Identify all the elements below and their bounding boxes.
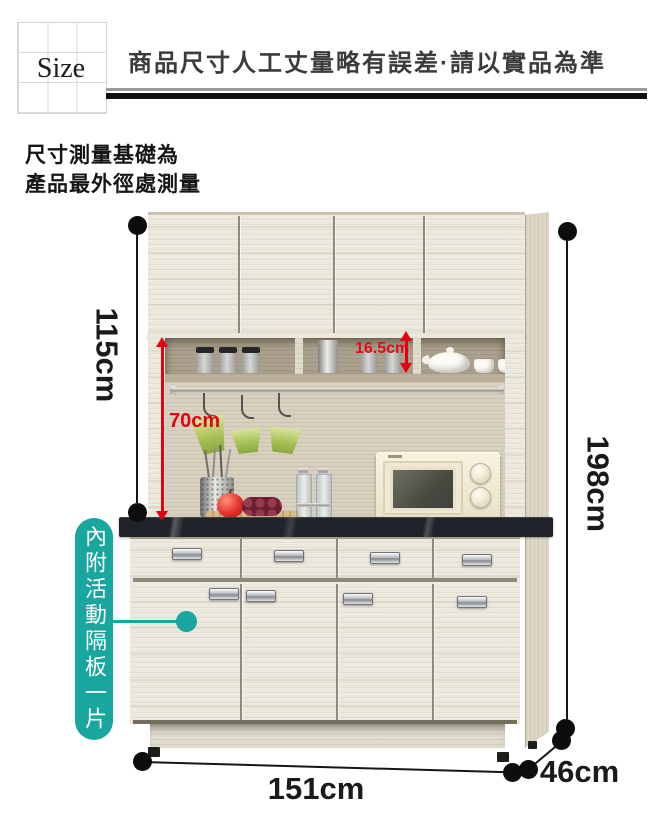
door-handle-4 [457, 596, 487, 608]
hutch-door-gap-3 [423, 216, 425, 333]
microwave-brand-mark [388, 455, 402, 458]
door-handle-3 [343, 593, 373, 605]
width-label: 151cm [256, 771, 376, 807]
header-rule-black [106, 93, 647, 99]
upper-height-label: 115cm [92, 308, 123, 398]
total-height-line [566, 234, 568, 726]
header-rule-gray [106, 88, 647, 91]
foot-side [528, 741, 537, 749]
upper-height-line [136, 226, 138, 512]
marble-countertop [119, 517, 553, 537]
note-line-2: 產品最外徑處測量 [25, 170, 201, 199]
door-handle-1 [209, 588, 239, 600]
niche-divider-2 [413, 338, 421, 374]
right-stile [505, 338, 525, 518]
total-height-dot-top [558, 222, 577, 241]
door-gap-2 [336, 584, 338, 722]
door-gap-3 [432, 584, 434, 722]
rail-hook-3 [278, 393, 291, 417]
drawer-gap-3 [432, 539, 434, 578]
callout-pill: 內附活動隔板一片 [75, 518, 113, 740]
clearance-arrow-up [156, 337, 168, 347]
depth-dot-top [552, 731, 571, 750]
spice-jar-1 [196, 353, 214, 373]
drawer-handle-4 [462, 554, 492, 566]
oil-bottle-1 [296, 474, 312, 520]
grapes [242, 497, 282, 516]
cabinet-side-panel [525, 212, 549, 748]
niche-divider-1 [295, 338, 303, 374]
door-gap-1 [240, 584, 242, 722]
note-line-1: 尺寸測量基礎為 [25, 141, 201, 170]
drawer-handle-2 [274, 550, 304, 562]
hutch-top-edge [148, 212, 525, 215]
drawer-top-gap [130, 537, 520, 539]
drawer-handle-1 [172, 548, 202, 560]
microwave-knob-top [470, 463, 491, 484]
measurement-basis-note: 尺寸測量基礎為 產品最外徑處測量 [25, 141, 201, 199]
size-label: Size [17, 53, 105, 85]
drawer-gap-2 [336, 539, 338, 578]
hanging-rail [172, 388, 504, 393]
niche-arrow-down [400, 363, 412, 373]
upper-height-dot-top [128, 216, 147, 235]
spice-jar-2 [219, 353, 237, 373]
hutch-door-gap-2 [333, 216, 335, 333]
drawer-door-gap [133, 578, 517, 582]
drawer-handle-3 [370, 552, 400, 564]
clearance-arrow-down [156, 511, 168, 521]
spice-jar-3 [242, 353, 260, 373]
apple [217, 493, 244, 518]
door-handle-2 [246, 590, 276, 602]
clearance-height-label: 70cm [169, 410, 220, 433]
steel-canister [318, 340, 338, 373]
total-height-label: 198cm [583, 436, 614, 528]
depth-dot-bottom [519, 760, 538, 779]
oil-bottle-2 [316, 474, 332, 520]
measurement-notice: 商品尺寸人工丈量略有誤差·請以實品為準 [128, 43, 643, 78]
product-size-diagram: Size 商品尺寸人工丈量略有誤差·請以實品為準 尺寸測量基礎為 產品最外徑處測… [0, 0, 650, 823]
rail-hook-2 [241, 395, 254, 419]
niche-height-label: 16.5cm [355, 340, 409, 358]
drawer-gap-1 [240, 539, 242, 578]
microwave-window [390, 467, 456, 511]
teacup-1 [474, 359, 494, 373]
foot-right [497, 752, 509, 762]
upper-height-dot-bottom [128, 503, 147, 522]
depth-label: 46cm [537, 754, 622, 790]
hutch-doors [148, 214, 525, 333]
width-dot-left [133, 752, 152, 771]
hutch-door-gap-1 [238, 216, 240, 333]
teapot [428, 352, 470, 373]
callout-dot [176, 611, 197, 632]
plinth [150, 724, 505, 748]
microwave-knob-bottom [470, 487, 491, 508]
clearance-arrow-line [161, 345, 164, 513]
bottle-band [296, 503, 330, 507]
